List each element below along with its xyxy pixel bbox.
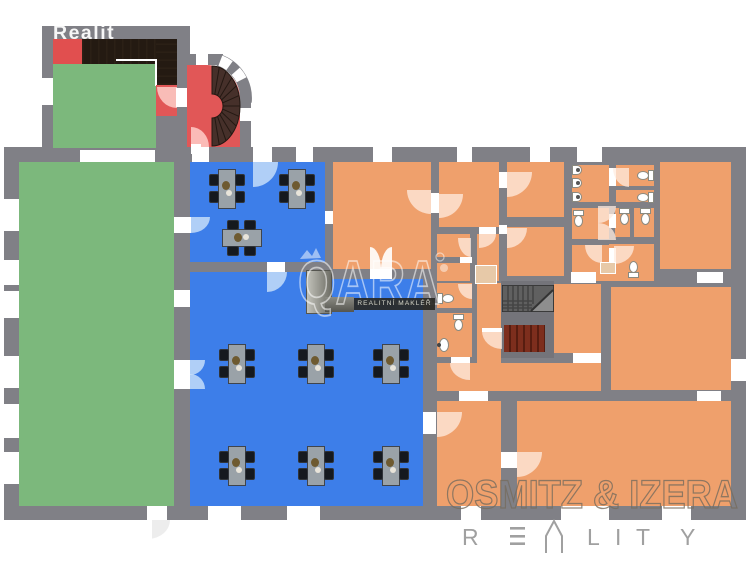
svg-text:OSMITZ & IZERA: OSMITZ & IZERA [446,473,738,517]
svg-text:I: I [615,524,621,550]
svg-text:T: T [636,524,650,550]
svg-text:R: R [462,524,479,550]
svg-text:Y: Y [680,524,695,550]
svg-text:L: L [587,524,600,550]
